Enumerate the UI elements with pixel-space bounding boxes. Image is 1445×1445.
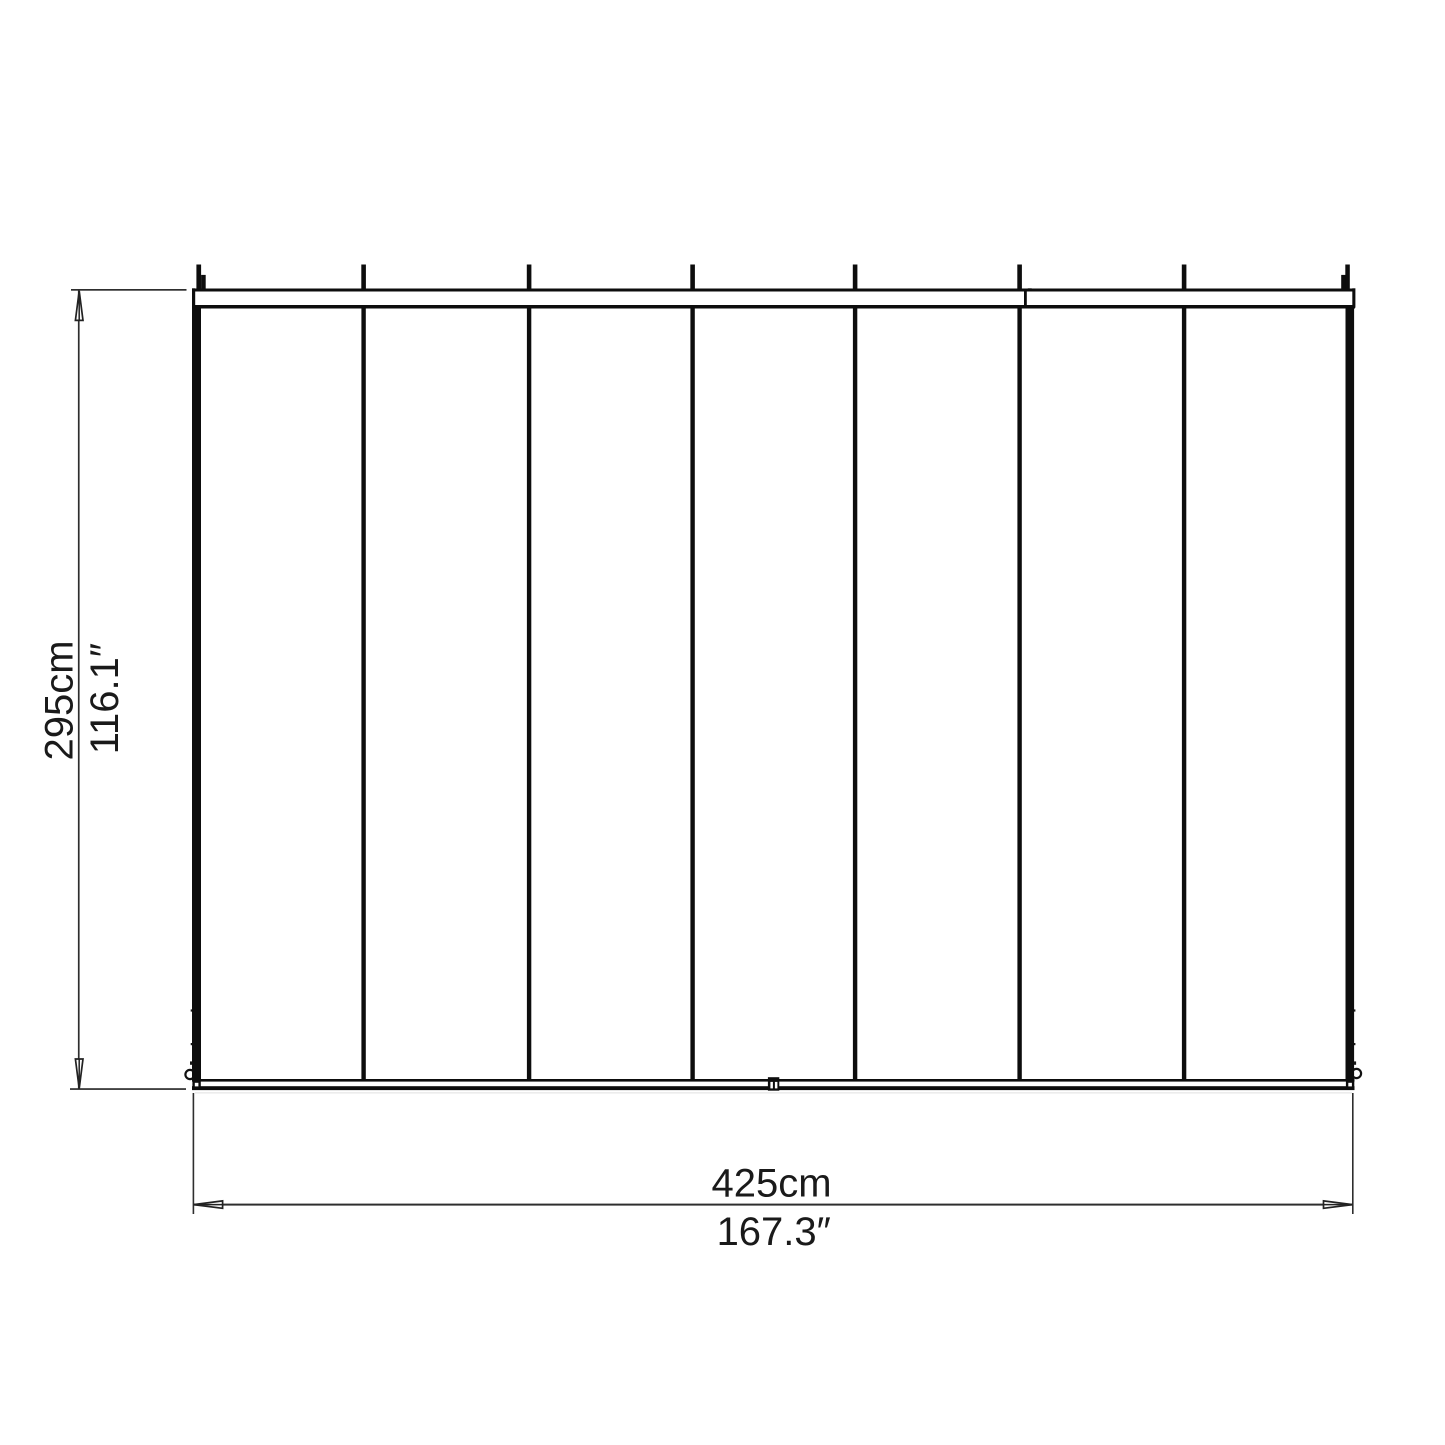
svg-text:116.1″: 116.1″ <box>83 643 127 754</box>
svg-text:425cm: 425cm <box>711 1162 831 1206</box>
svg-text:295cm: 295cm <box>38 640 82 760</box>
svg-text:167.3″: 167.3″ <box>717 1210 831 1254</box>
